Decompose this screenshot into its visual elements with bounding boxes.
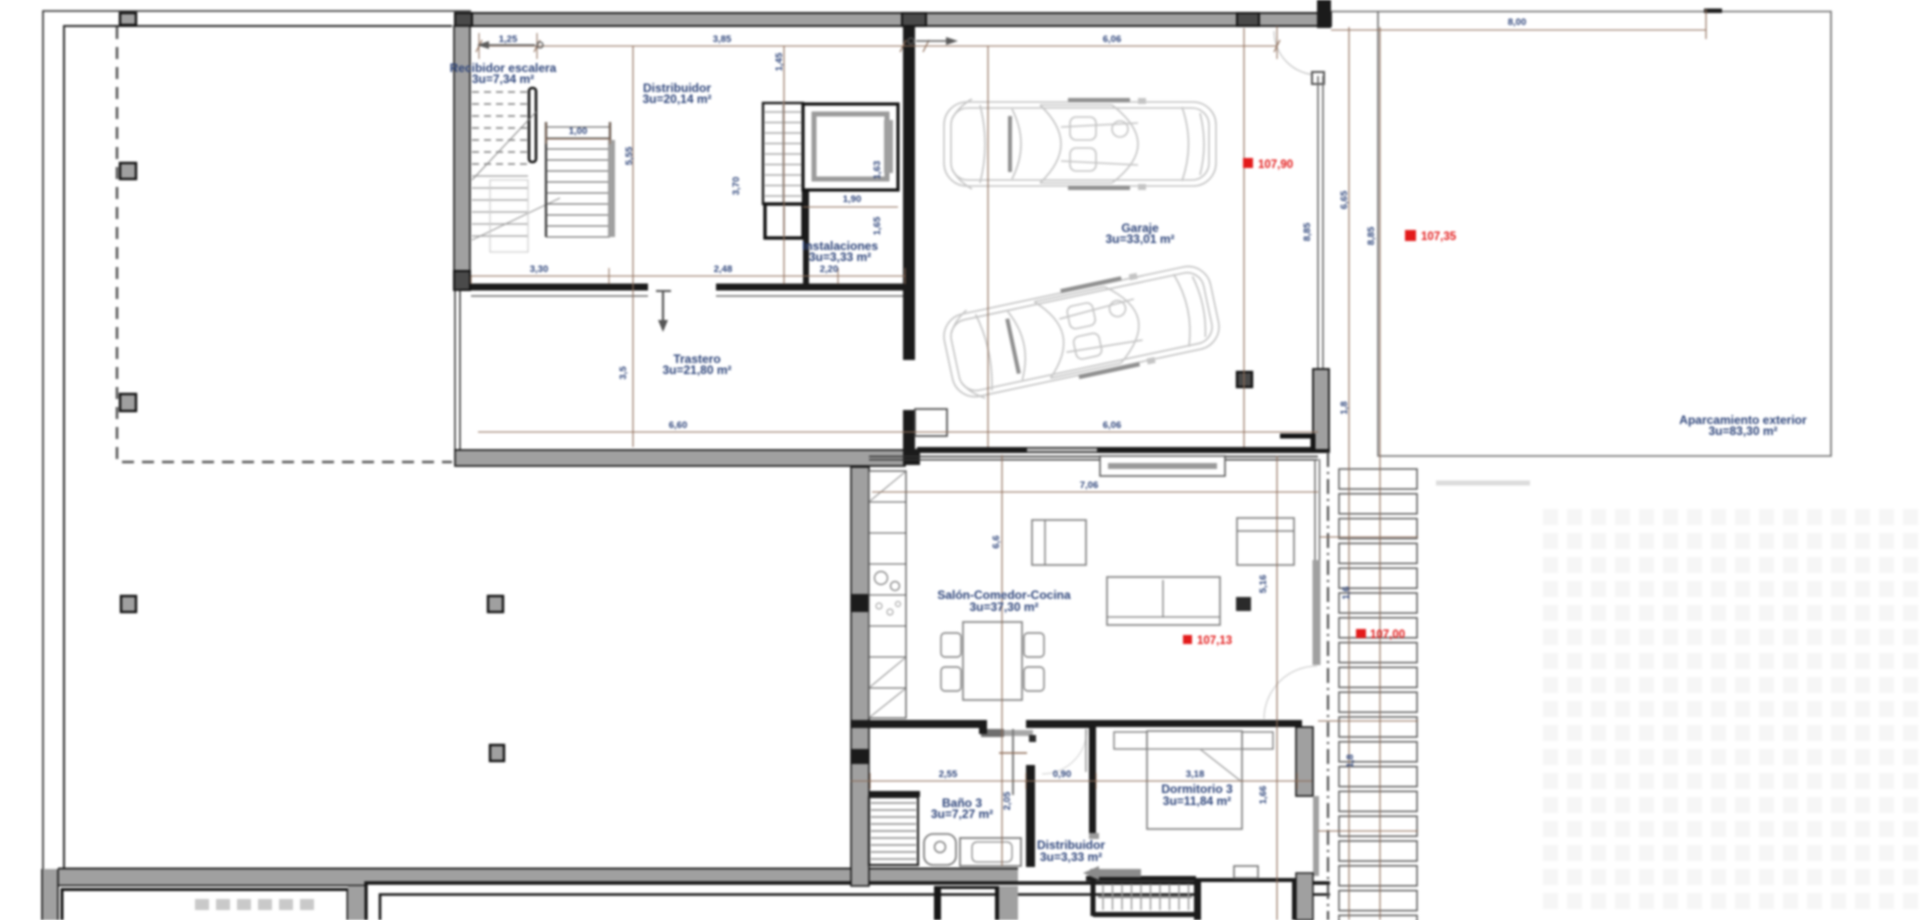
svg-text:1,65: 1,65: [872, 216, 883, 235]
svg-text:1,00: 1,00: [569, 126, 588, 137]
svg-text:6,60: 6,60: [669, 420, 688, 431]
svg-text:6,6: 6,6: [991, 535, 1002, 548]
svg-text:2,20: 2,20: [820, 264, 839, 275]
svg-text:1,8: 1,8: [1339, 401, 1350, 414]
svg-text:3u=83,30 m²: 3u=83,30 m²: [1708, 424, 1777, 438]
svg-text:3u=37,30 m²: 3u=37,30 m²: [969, 600, 1038, 614]
svg-text:1,66: 1,66: [1258, 786, 1269, 805]
svg-text:3,5: 3,5: [618, 366, 629, 380]
svg-text:107,90: 107,90: [1258, 159, 1293, 171]
svg-text:7,06: 7,06: [1080, 480, 1099, 491]
svg-text:2,05: 2,05: [1002, 791, 1013, 810]
svg-text:3u=7,34 m²: 3u=7,34 m²: [472, 72, 534, 86]
svg-text:3u=7,27 m²: 3u=7,27 m²: [931, 807, 993, 821]
svg-text:3,30: 3,30: [530, 264, 549, 275]
svg-text:3u=20,14 m²: 3u=20,14 m²: [642, 92, 711, 106]
svg-text:1,63: 1,63: [872, 161, 883, 180]
svg-text:8,85: 8,85: [1302, 222, 1313, 241]
svg-text:3u=11,84 m²: 3u=11,84 m²: [1163, 794, 1231, 808]
svg-text:107,13: 107,13: [1197, 635, 1232, 647]
svg-text:5,16: 5,16: [1258, 575, 1269, 594]
svg-text:6,65: 6,65: [1339, 190, 1350, 209]
svg-text:3u=21,80 m²: 3u=21,80 m²: [662, 363, 731, 377]
svg-text:1,45: 1,45: [774, 52, 785, 71]
svg-text:1,90: 1,90: [843, 194, 862, 205]
svg-text:8,85: 8,85: [1366, 226, 1377, 245]
svg-text:3u=3,33 m²: 3u=3,33 m²: [809, 250, 871, 264]
svg-text:0,90: 0,90: [1053, 769, 1072, 780]
svg-text:1,25: 1,25: [499, 34, 518, 45]
svg-text:3u=3,33 m²: 3u=3,33 m²: [1040, 850, 1102, 864]
svg-text:107,00: 107,00: [1370, 629, 1405, 641]
svg-text:5,55: 5,55: [624, 146, 635, 165]
svg-text:1,6: 1,6: [1341, 586, 1352, 599]
svg-text:3u=33,01 m²: 3u=33,01 m²: [1105, 232, 1174, 246]
svg-text:2,48: 2,48: [714, 264, 733, 275]
svg-text:3,85: 3,85: [713, 34, 732, 45]
svg-text:6,06: 6,06: [1103, 420, 1122, 431]
svg-text:3,18: 3,18: [1186, 769, 1205, 780]
svg-text:6,06: 6,06: [1103, 34, 1122, 45]
svg-text:8,00: 8,00: [1508, 17, 1527, 28]
svg-text:2,55: 2,55: [939, 769, 958, 780]
svg-text:107,35: 107,35: [1421, 231, 1457, 243]
svg-text:1,8: 1,8: [1345, 754, 1356, 767]
svg-text:3,70: 3,70: [731, 177, 742, 196]
